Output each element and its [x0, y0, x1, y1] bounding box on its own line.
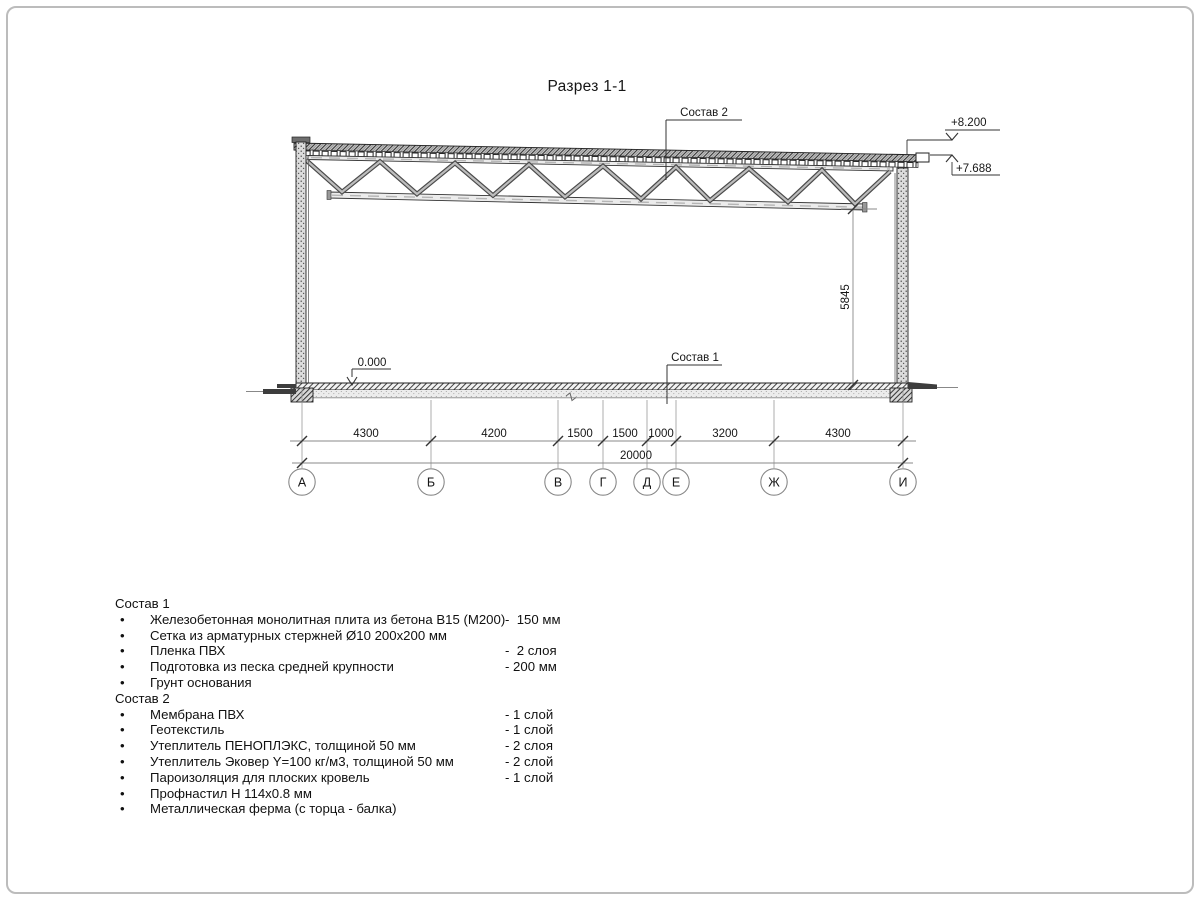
- layer-name: Грунт основания: [150, 675, 252, 691]
- layer-name: Сетка из арматурных стержней Ø10 200х200…: [150, 628, 447, 644]
- bullet-icon: •: [120, 628, 125, 644]
- layer-name: Профнастил Н 114х0.8 мм: [150, 786, 312, 802]
- layer-qty: - 200 мм: [505, 659, 557, 675]
- floor-and-ground: [246, 382, 958, 402]
- left-apron-step-2: [263, 389, 296, 394]
- bullet-icon: •: [120, 801, 125, 817]
- dim-value: 4300: [353, 428, 379, 440]
- list-item: • Пленка ПВХ - 2 слоя: [115, 643, 585, 659]
- layer-qty: - 1 слой: [505, 770, 553, 786]
- bullet-icon: •: [120, 770, 125, 786]
- list-item: • Мембрана ПВХ - 1 слой: [115, 707, 585, 723]
- left-apron-step-1: [277, 384, 296, 388]
- list-item: • Пароизоляция для плоских кровель - 1 с…: [115, 770, 585, 786]
- dim-value: 4300: [825, 428, 851, 440]
- drawing-title: Разрез 1-1: [547, 78, 626, 95]
- dimension-row-total: 20000: [292, 450, 913, 468]
- layer-qty: - 2 слоя: [505, 643, 557, 659]
- bottom-chord-end-plate-right: [863, 203, 868, 213]
- elevation-mark-roof-low: +7.688: [930, 155, 1000, 175]
- layer-name: Пароизоляция для плоских кровель: [150, 770, 370, 786]
- list-item: • Железобетонная монолитная плита из бет…: [115, 612, 585, 628]
- axis-label: Г: [600, 476, 607, 490]
- bullet-icon: •: [120, 612, 125, 628]
- sostav2-heading: Состав 2: [115, 691, 585, 707]
- right-footing: [890, 388, 912, 402]
- dim-value: 3200: [712, 428, 738, 440]
- elev-roof-top-value: +8.200: [951, 117, 987, 129]
- layer-name: Железобетонная монолитная плита из бетон…: [150, 612, 505, 628]
- axis-label: Ж: [768, 476, 780, 490]
- axis-label: И: [899, 476, 908, 490]
- list-item: • Геотекстиль - 1 слой: [115, 722, 585, 738]
- total-dim-value: 20000: [620, 450, 652, 462]
- section-drawing: Разрез 1-1: [0, 0, 1200, 530]
- drawing-sheet: Разрез 1-1: [0, 0, 1200, 900]
- bullet-icon: •: [120, 754, 125, 770]
- axis-label: Е: [672, 476, 680, 490]
- layer-qty: - 2 слой: [505, 754, 553, 770]
- bullet-icon: •: [120, 722, 125, 738]
- layer-qty: - 2 слоя: [505, 738, 553, 754]
- bullet-icon: •: [120, 707, 125, 723]
- bullet-icon: •: [120, 659, 125, 675]
- sand-bed: [306, 390, 897, 398]
- layer-name: Геотекстиль: [150, 722, 224, 738]
- elevation-mark-floor: 0.000: [347, 357, 391, 385]
- left-wall: [296, 142, 306, 388]
- leader-sostav1-label: Состав 1: [671, 352, 719, 364]
- list-item: • Грунт основания: [115, 675, 585, 691]
- layer-name: Металлическая ферма (с торца - балка): [150, 801, 396, 817]
- bullet-icon: •: [120, 643, 125, 659]
- elevation-mark-roof-top: +8.200: [907, 117, 1000, 154]
- dim-value: 4200: [481, 428, 507, 440]
- axis-label: В: [554, 476, 562, 490]
- height-dimension: 5845: [840, 204, 877, 390]
- leader-sostav2-label: Состав 2: [680, 107, 728, 119]
- grid-lines: [302, 388, 903, 468]
- floor-slab: [296, 383, 908, 390]
- list-item: • Профнастил Н 114х0.8 мм: [115, 786, 585, 802]
- layer-legend: Состав 1 • Железобетонная монолитная пли…: [115, 596, 585, 817]
- dim-value: 1500: [612, 428, 638, 440]
- layer-name: Утеплитель Эковер Y=100 кг/м3, толщиной …: [150, 754, 454, 770]
- list-item: • Утеплитель Эковер Y=100 кг/м3, толщино…: [115, 754, 585, 770]
- list-item: • Сетка из арматурных стержней Ø10 200х2…: [115, 628, 585, 644]
- layer-qty: - 1 слой: [505, 722, 553, 738]
- bottom-chord-end-plate-left: [327, 191, 331, 200]
- height-dim-value: 5845: [840, 284, 852, 310]
- list-item: • Металлическая ферма (с торца - балка): [115, 801, 585, 817]
- layer-name: Утеплитель ПЕНОПЛЭКС, толщиной 50 мм: [150, 738, 416, 754]
- elev-floor-value: 0.000: [358, 357, 387, 369]
- walls: [296, 142, 908, 388]
- elev-arrow-icon: [946, 133, 958, 140]
- elev-roof-low-value: +7.688: [956, 163, 992, 175]
- dim-value: 1500: [567, 428, 593, 440]
- bullet-icon: •: [120, 786, 125, 802]
- elev-arrow-icon: [946, 155, 958, 162]
- list-item: • Подготовка из песка средней крупности …: [115, 659, 585, 675]
- layer-name: Подготовка из песка средней крупности: [150, 659, 394, 675]
- axis-label: Б: [427, 476, 435, 490]
- right-apron: [908, 382, 937, 389]
- right-wall: [897, 168, 908, 388]
- list-item: • Утеплитель ПЕНОПЛЭКС, толщиной 50 мм -…: [115, 738, 585, 754]
- axis-bubbles: А Б В Г Д Е Ж И: [289, 469, 916, 495]
- layer-qty: - 150 мм: [505, 612, 561, 628]
- axis-label: А: [298, 476, 307, 490]
- bullet-icon: •: [120, 738, 125, 754]
- axis-label: Д: [643, 476, 652, 490]
- layer-name: Мембрана ПВХ: [150, 707, 244, 723]
- right-roof-edge-cap: [916, 153, 929, 162]
- sostav1-heading: Состав 1: [115, 596, 585, 612]
- layer-qty: - 1 слой: [505, 707, 553, 723]
- layer-name: Пленка ПВХ: [150, 643, 225, 659]
- dim-value: 1000: [648, 428, 674, 440]
- bullet-icon: •: [120, 675, 125, 691]
